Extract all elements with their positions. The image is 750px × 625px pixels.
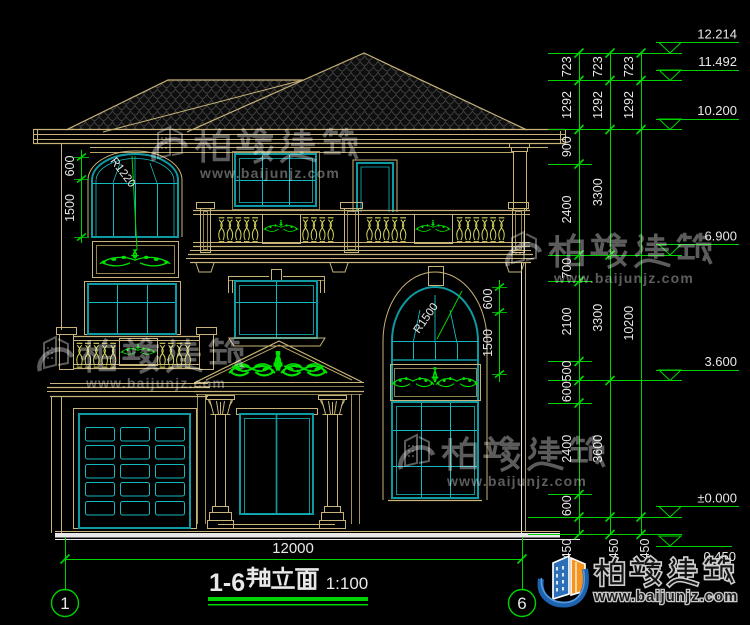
svg-text:10.200: 10.200 bbox=[697, 103, 737, 118]
svg-text:1-6: 1-6 bbox=[209, 569, 245, 597]
svg-text:1:100: 1:100 bbox=[326, 574, 369, 593]
svg-text:1292: 1292 bbox=[560, 91, 574, 119]
svg-text:1500: 1500 bbox=[481, 329, 495, 357]
svg-text:12.214: 12.214 bbox=[697, 27, 737, 42]
svg-text:900: 900 bbox=[560, 136, 574, 157]
svg-text:723: 723 bbox=[591, 56, 605, 77]
svg-text:723: 723 bbox=[560, 56, 574, 77]
svg-text:www.baijunjz.com: www.baijunjz.com bbox=[85, 375, 226, 391]
svg-text:2400: 2400 bbox=[560, 196, 574, 224]
svg-text:3.600: 3.600 bbox=[704, 354, 737, 369]
svg-text:600: 600 bbox=[481, 289, 495, 310]
svg-text:723: 723 bbox=[622, 56, 636, 77]
svg-text:2100: 2100 bbox=[560, 308, 574, 336]
svg-text:1292: 1292 bbox=[622, 91, 636, 119]
svg-text:1292: 1292 bbox=[591, 91, 605, 119]
svg-text:600: 600 bbox=[560, 381, 574, 402]
svg-text:3300: 3300 bbox=[591, 304, 605, 332]
svg-text:11.492: 11.492 bbox=[698, 54, 737, 69]
svg-text:www.baijunjz.com: www.baijunjz.com bbox=[446, 473, 587, 489]
svg-text:3300: 3300 bbox=[591, 178, 605, 206]
svg-text:10200: 10200 bbox=[622, 306, 636, 341]
svg-text:www.baijunjz.com: www.baijunjz.com bbox=[553, 270, 694, 286]
svg-text:600: 600 bbox=[63, 156, 77, 177]
svg-text:±0.000: ±0.000 bbox=[697, 491, 737, 506]
svg-text:www.baijunjz.com: www.baijunjz.com bbox=[593, 589, 738, 605]
svg-text:6: 6 bbox=[517, 594, 526, 613]
svg-text:1: 1 bbox=[60, 594, 69, 613]
svg-text:1500: 1500 bbox=[63, 194, 77, 222]
svg-text:12000: 12000 bbox=[272, 540, 314, 557]
svg-text:www.baijunjz.com: www.baijunjz.com bbox=[199, 165, 340, 181]
svg-text:600: 600 bbox=[560, 495, 574, 516]
svg-text:500: 500 bbox=[560, 361, 574, 382]
svg-text:6.900: 6.900 bbox=[704, 229, 737, 244]
